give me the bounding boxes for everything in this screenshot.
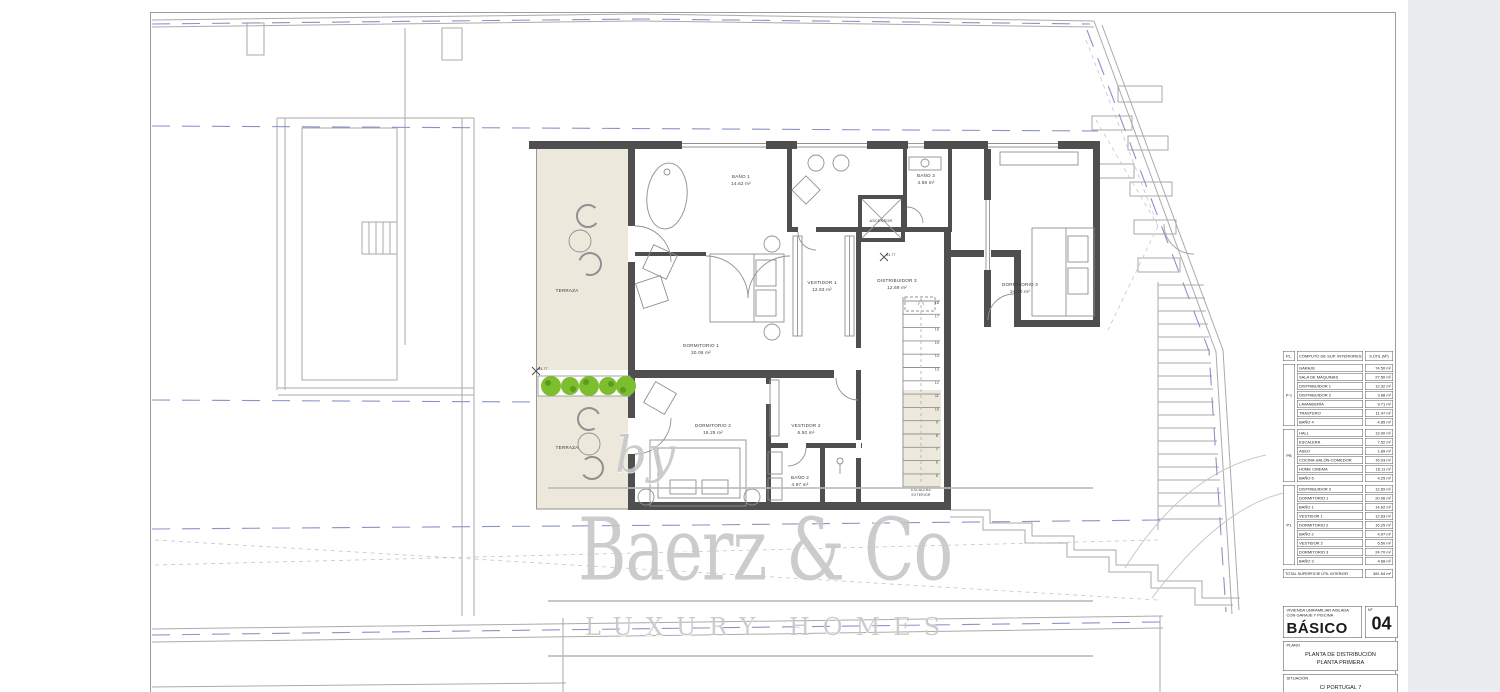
planter-plants xyxy=(541,376,636,396)
room-name-cell: BAÑO 5 xyxy=(1297,474,1363,482)
areas-table-groups: P-1GARAJE74.50 m²SALA DE MÁQUINAS27.50 m… xyxy=(1283,364,1393,565)
stair-step-number: 15 xyxy=(935,341,939,345)
terraza-upper-label: TERRAZA xyxy=(556,288,580,293)
bano1-label: BAÑO 1 xyxy=(732,173,750,179)
title-block: VIVIENDA UNIFAMILIAR AISLADA CON GARAJE … xyxy=(1283,606,1398,692)
situacion-box: SITUACIÓN C/ PORTUGAL 7 xyxy=(1283,674,1398,692)
room-area-cell: 16.11 m² xyxy=(1365,465,1393,473)
room-area-cell: 1.89 m² xyxy=(1365,447,1393,455)
ascensor-label: ASCENSOR xyxy=(870,219,893,223)
room-area-cell: 4.25 m² xyxy=(1365,474,1393,482)
terraza-lower-label: TERRAZA xyxy=(556,445,580,450)
stair-step-number: 17 xyxy=(935,314,939,318)
room-area-cell: 76.03 m² xyxy=(1365,456,1393,464)
bano3-label: BAÑO 3 xyxy=(917,172,935,178)
stair-step-number: 11 xyxy=(935,394,939,398)
table-row: ESCALERA7.52 m² xyxy=(1297,438,1393,446)
areas-table-group: P-1GARAJE74.50 m²SALA DE MÁQUINAS27.50 m… xyxy=(1283,364,1393,426)
dormitorio3-area: 24.70 m² xyxy=(1010,289,1030,294)
room-area-cell: 6.50 m² xyxy=(1365,539,1393,547)
room-name-cell: BAÑO 4 xyxy=(1297,418,1363,426)
stair-step-number: 16 xyxy=(935,328,939,332)
room-area-cell: 9.71 m² xyxy=(1365,400,1393,408)
table-row: TRASTERO11.47 m² xyxy=(1297,409,1393,417)
header-sutil-cell: S.ÚTIL (M²) xyxy=(1365,351,1393,361)
room-area-cell: 24.70 m² xyxy=(1365,548,1393,556)
bano2-label: BAÑO 2 xyxy=(791,474,809,480)
survey-marker-value: 34.77 xyxy=(538,367,548,371)
sheet-number: 04 xyxy=(1368,614,1395,634)
room-name-cell: DISTRIBUIDOR 1 xyxy=(1297,382,1363,390)
stair-step-number: 12 xyxy=(935,381,939,385)
table-row: SALA DE MÁQUINAS27.50 m² xyxy=(1297,373,1393,381)
table-row: BAÑO 54.25 m² xyxy=(1297,474,1393,482)
plano-line1: PLANTA DE DISTRIBUCIÓN xyxy=(1287,651,1395,659)
room-area-cell: 13.00 m² xyxy=(1365,429,1393,437)
watermark-by: by xyxy=(615,426,675,484)
room-name-cell: DORMITORIO 2 xyxy=(1297,521,1363,529)
stair-step-number: 5 xyxy=(936,474,938,478)
group-floor-label: PB xyxy=(1283,429,1295,482)
plano-label: PLANO xyxy=(1287,643,1395,648)
room-area-cell: 12.32 m² xyxy=(1365,382,1393,390)
areas-table-header: PL. CÓMPUTO DE SUP. INTERIORES S.ÚTIL (M… xyxy=(1283,351,1393,361)
room-area-cell: 11.47 m² xyxy=(1365,409,1393,417)
room-area-cell: 12.83 m² xyxy=(1365,512,1393,520)
table-row: VESTIDOR 112.83 m² xyxy=(1297,512,1393,520)
areas-table-group: P1DISTRIBUIDOR 312.69 m²DORMITORIO 120.0… xyxy=(1283,485,1393,565)
total-value-cell: 381.54 m² xyxy=(1365,569,1393,578)
vestidor2-area: 6.50 m² xyxy=(798,430,815,435)
table-row: HOME CINEMA16.11 m² xyxy=(1297,465,1393,473)
room-name-cell: LAVANDERÍA xyxy=(1297,400,1363,408)
watermark-rule-bottom xyxy=(548,655,1093,657)
watermark-brand: Baerz & Co xyxy=(578,504,938,598)
wall-openings xyxy=(628,141,1058,458)
stair-step-number: 18 xyxy=(935,301,939,305)
room-area-cell: 20.06 m² xyxy=(1365,494,1393,502)
vestidor1-area: 12.83 m² xyxy=(812,287,832,292)
room-area-cell: 4.85 m² xyxy=(1365,418,1393,426)
room-name-cell: ASEO xyxy=(1297,447,1363,455)
watermark-rule-top xyxy=(548,487,1093,489)
dormitorio1-area: 20.06 m² xyxy=(691,350,711,355)
room-area-cell: 74.50 m² xyxy=(1365,364,1393,372)
room-area-cell: 12.69 m² xyxy=(1365,485,1393,493)
bano1-area: 14.62 m² xyxy=(731,181,751,186)
escalera-exterior-label2: EXTERIOR xyxy=(912,493,931,497)
table-row: GARAJE74.50 m² xyxy=(1297,364,1393,372)
room-area-cell: 14.62 m² xyxy=(1365,503,1393,511)
table-row: BAÑO 34.68 m² xyxy=(1297,557,1393,565)
bano3-area: 4.68 m² xyxy=(918,180,935,185)
table-row: BAÑO 24.97 m² xyxy=(1297,530,1393,538)
room-name-cell: DISTRIBUIDOR 2 xyxy=(1297,391,1363,399)
areas-table: PL. CÓMPUTO DE SUP. INTERIORES S.ÚTIL (M… xyxy=(1283,351,1393,578)
room-name-cell: BAÑO 2 xyxy=(1297,530,1363,538)
room-area-cell: 7.52 m² xyxy=(1365,438,1393,446)
vestidor1-label: VESTIDOR 1 xyxy=(807,280,837,285)
room-name-cell: BAÑO 3 xyxy=(1297,557,1363,565)
stair-step-number: 10 xyxy=(935,407,939,411)
number-label: Nº xyxy=(1368,608,1395,613)
dormitorio1-label: DORMITORIO 1 xyxy=(683,343,719,348)
table-row: DISTRIBUIDOR 23.88 m² xyxy=(1297,391,1393,399)
dormitorio3-label: DORMITORIO 3 xyxy=(1002,282,1038,287)
survey-marker-value: 34.77 xyxy=(886,253,896,257)
table-row: VESTIDOR 26.50 m² xyxy=(1297,539,1393,547)
table-row: ASEO1.89 m² xyxy=(1297,447,1393,455)
room-area-cell: 27.50 m² xyxy=(1365,373,1393,381)
project-line2: CON GARAJE Y PISCINA xyxy=(1287,613,1359,618)
group-floor-label: P1 xyxy=(1283,485,1295,565)
table-row: HALL13.00 m² xyxy=(1297,429,1393,437)
dormitorio2-label: DORMITORIO 2 xyxy=(695,423,731,428)
room-name-cell: VESTIDOR 2 xyxy=(1297,539,1363,547)
room-name-cell: VESTIDOR 1 xyxy=(1297,512,1363,520)
dormitorio2-area: 16.25 m² xyxy=(703,430,723,435)
stair-step-number: 9 xyxy=(936,421,938,425)
areas-table-group: PBHALL13.00 m²ESCALERA7.52 m²ASEO1.89 m²… xyxy=(1283,429,1393,482)
stair-step-number: 13 xyxy=(935,368,939,372)
group-floor-label: P-1 xyxy=(1283,364,1295,426)
plano-box: PLANO PLANTA DE DISTRIBUCIÓN PLANTA PRIM… xyxy=(1283,641,1398,671)
drawing-sheet: TERRAZA TERRAZA BAÑO 1 14.62 m² BAÑO 3 4… xyxy=(0,0,1500,692)
table-row: DORMITORIO 324.70 m² xyxy=(1297,548,1393,556)
distribuidor3-label: DISTRIBUIDOR 3 xyxy=(877,278,917,283)
table-row: DISTRIBUIDOR 312.69 m² xyxy=(1297,485,1393,493)
room-area-cell: 3.88 m² xyxy=(1365,391,1393,399)
plano-line2: PLANTA PRIMERA xyxy=(1287,659,1395,667)
table-row: DISTRIBUIDOR 112.32 m² xyxy=(1297,382,1393,390)
room-name-cell: HALL xyxy=(1297,429,1363,437)
table-row: BAÑO 114.62 m² xyxy=(1297,503,1393,511)
areas-table-total-row: TOTAL SUPERFICIE ÚTIL INTERIOR 381.54 m² xyxy=(1283,569,1393,578)
table-row: DORMITORIO 120.06 m² xyxy=(1297,494,1393,502)
room-name-cell: DORMITORIO 1 xyxy=(1297,494,1363,502)
sheet-number-box: Nº 04 xyxy=(1365,606,1398,638)
terrace-fills xyxy=(536,149,941,509)
stair-step-number: 8 xyxy=(936,434,938,438)
table-row: LAVANDERÍA9.71 m² xyxy=(1297,400,1393,408)
watermark-rule-middle xyxy=(548,600,1093,602)
room-name-cell: COCINA-SALÓN-COMEDOR xyxy=(1297,456,1363,464)
table-row: COCINA-SALÓN-COMEDOR76.03 m² xyxy=(1297,456,1393,464)
table-row: DORMITORIO 216.25 m² xyxy=(1297,521,1393,529)
situacion-label: SITUACIÓN xyxy=(1287,676,1395,681)
stair-step-number: 6 xyxy=(936,461,938,465)
room-area-cell: 4.97 m² xyxy=(1365,530,1393,538)
header-title-cell: CÓMPUTO DE SUP. INTERIORES xyxy=(1297,351,1363,361)
room-name-cell: HOME CINEMA xyxy=(1297,465,1363,473)
doc-type: BÁSICO xyxy=(1287,620,1359,637)
room-name-cell: SALA DE MÁQUINAS xyxy=(1297,373,1363,381)
stair-step-number: 14 xyxy=(935,354,939,358)
vestidor2-label: VESTIDOR 2 xyxy=(791,423,821,428)
distribuidor3-area: 12.69 m² xyxy=(887,285,907,290)
header-pl-cell: PL. xyxy=(1283,351,1295,361)
room-name-cell: GARAJE xyxy=(1297,364,1363,372)
total-label-cell: TOTAL SUPERFICIE ÚTIL INTERIOR xyxy=(1283,569,1363,578)
room-area-cell: 16.25 m² xyxy=(1365,521,1393,529)
table-row: BAÑO 44.85 m² xyxy=(1297,418,1393,426)
room-name-cell: ESCALERA xyxy=(1297,438,1363,446)
situacion-value: C/ PORTUGAL 7 xyxy=(1287,684,1395,692)
watermark-tagline: LUXURY HOMES xyxy=(585,613,937,641)
room-area-cell: 4.68 m² xyxy=(1365,557,1393,565)
stair-step-number: 7 xyxy=(936,447,938,451)
room-name-cell: BAÑO 1 xyxy=(1297,503,1363,511)
room-name-cell: TRASTERO xyxy=(1297,409,1363,417)
room-name-cell: DORMITORIO 3 xyxy=(1297,548,1363,556)
project-box: VIVIENDA UNIFAMILIAR AISLADA CON GARAJE … xyxy=(1283,606,1362,638)
room-name-cell: DISTRIBUIDOR 3 xyxy=(1297,485,1363,493)
